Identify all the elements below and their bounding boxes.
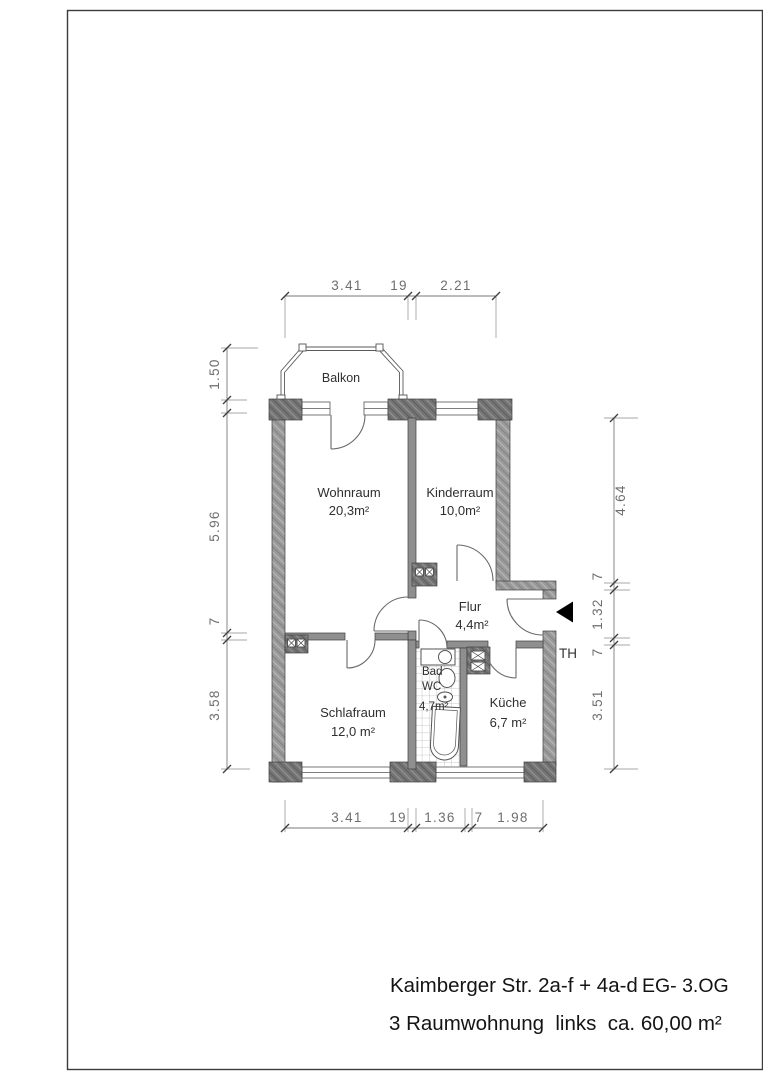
door-kueche (486, 648, 516, 678)
window-wohnraum-right (364, 402, 388, 415)
dim-left-1: 1.50 (207, 358, 222, 389)
bad-label: Bad (422, 666, 442, 678)
floor-plan-svg: Balkon (0, 0, 763, 1080)
kueche-area: 6,7 m² (490, 715, 528, 730)
pier-top-right (478, 399, 512, 420)
dimension-chain-left: 1.50 5.96 7 3.58 (207, 344, 258, 773)
wall-schlafraum-bad (408, 640, 416, 769)
kinderraum-area: 10,0m² (440, 503, 481, 518)
dimension-chain-top: 3.41 19 2.21 (281, 278, 500, 338)
title-address: Kaimberger Str. 2a-f + 4a-d (390, 974, 638, 997)
wall-east-kinderraum (496, 420, 510, 583)
balcony-post (299, 344, 306, 351)
wall-step-entrance (496, 581, 556, 590)
window-wohnraum-left (302, 402, 330, 415)
dim-right-5: 3.51 (590, 689, 605, 720)
pier-top-middle (388, 399, 436, 420)
title-block: Kaimberger Str. 2a-f + 4a-d EG- 3.OG 3 R… (389, 974, 729, 1035)
dim-bottom-3: 1.36 (424, 810, 455, 825)
door-schlafraum (347, 640, 375, 668)
wall-bad-kueche (460, 648, 467, 766)
flur-label: Flur (459, 599, 482, 614)
dim-bottom-4: 7 (475, 810, 484, 825)
kueche-label: Küche (490, 695, 527, 710)
wall-junction (408, 631, 416, 640)
window-bad-kueche (436, 767, 524, 778)
dim-left-3: 7 (207, 617, 222, 626)
dim-right-4: 7 (590, 648, 605, 657)
kinderraum-label: Kinderraum (426, 485, 493, 500)
wohnraum-area: 20,3m² (329, 503, 370, 518)
pier-bottom-right (524, 762, 556, 782)
pier-bottom-left (269, 762, 302, 782)
dim-right-2: 7 (590, 572, 605, 581)
balcony-post (376, 344, 383, 351)
wall-wohnraum-schlafraum-b (375, 633, 408, 640)
schlafraum-label: Schlafraum (320, 705, 386, 720)
shaft-crossed-box-icon (412, 563, 437, 586)
bathtub (430, 706, 461, 760)
wall-flur-south-b (516, 641, 543, 648)
dim-right-1: 4.64 (613, 484, 628, 515)
dim-top-2: 19 (390, 278, 408, 293)
bad-area: 4,7m² (419, 701, 449, 713)
doors (331, 415, 543, 678)
flur-area: 4,4m² (455, 617, 489, 632)
wall-west (272, 400, 285, 782)
door-bad (419, 620, 447, 648)
title-description: 3 Raumwohnung links ca. 60,00 m² (389, 1012, 722, 1035)
entrance-arrow-icon (556, 602, 573, 623)
dim-right-3: 1.32 (590, 598, 605, 629)
balcony: Balkon (277, 344, 407, 401)
room-labels: Wohnraum 20,3m² Kinderraum 10,0m² Flur 4… (317, 485, 527, 739)
entrance-marker: TH (556, 602, 577, 662)
door-wohnraum (374, 597, 408, 631)
window-kinderraum (436, 402, 478, 415)
dim-left-2: 5.96 (207, 510, 222, 541)
dim-top-3: 2.21 (440, 278, 471, 293)
door-kinderraum (455, 545, 493, 590)
wohnraum-label: Wohnraum (317, 485, 380, 500)
dim-bottom-1: 3.41 (331, 810, 362, 825)
wall-east-kueche (543, 631, 556, 766)
wall-entrance-stub (543, 590, 556, 599)
stairwell-label: TH (559, 646, 577, 661)
balcony-label: Balkon (322, 371, 360, 385)
window-schlafraum (302, 767, 390, 778)
door-entrance (507, 599, 543, 635)
drawing-page: Balkon (0, 0, 763, 1080)
dim-bottom-5: 1.98 (497, 810, 528, 825)
dim-bottom-2: 19 (389, 810, 407, 825)
dim-top-1: 3.41 (331, 278, 362, 293)
dimension-chain-bottom: 3.41 19 1.36 7 1.98 (281, 800, 547, 832)
door-balcony (331, 415, 365, 449)
title-floors: EG- 3.OG (642, 975, 729, 997)
dim-left-4: 3.58 (207, 689, 222, 720)
washbasin (421, 649, 455, 665)
schlafraum-area: 12,0 m² (331, 724, 376, 739)
shaft-crossed-box-icon (285, 635, 308, 653)
pier-top-left (269, 399, 302, 420)
wc-label: WC (422, 681, 441, 693)
dimension-chain-right: 4.64 7 1.32 7 3.51 (590, 414, 638, 773)
